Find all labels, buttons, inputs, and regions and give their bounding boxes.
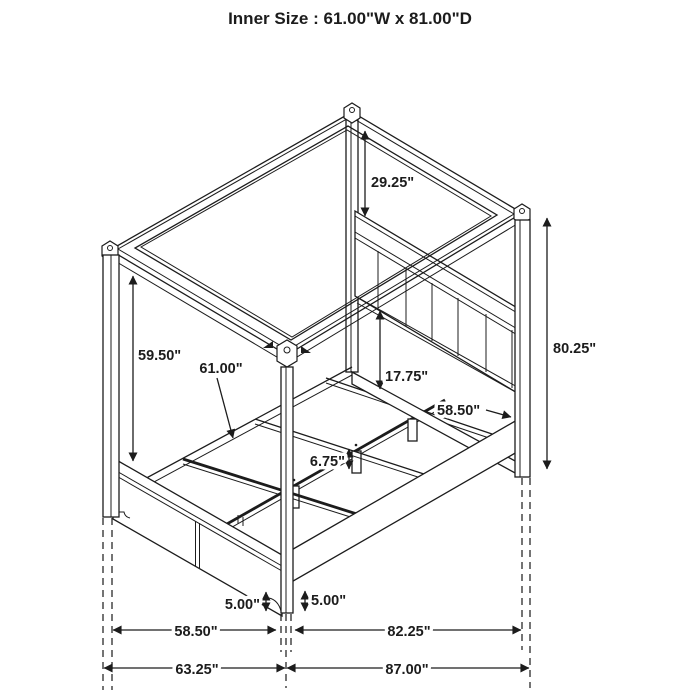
dim-label-58-50-bottom: 58.50" <box>174 624 217 640</box>
dim-label-59-50: 59.50" <box>138 348 181 364</box>
post-left <box>103 255 119 517</box>
dim-label-63-25: 63.25" <box>175 662 218 678</box>
dimension-canopy-to-footboard: 59.50" <box>133 276 181 461</box>
dimension-inner-depth: 58.50" <box>437 403 511 419</box>
dim-label-5-00-right: 5.00" <box>311 593 346 609</box>
dim-label-17-75: 17.75" <box>385 369 428 385</box>
dim-label-61-00: 61.00" <box>199 361 242 377</box>
dim-label-58-50-diag: 58.50" <box>437 403 480 419</box>
dimension-canopy-to-headboard: 29.25" <box>365 131 414 216</box>
post-right <box>515 220 530 477</box>
dimension-diagram: Inner Size : 61.00"W x 81.00"D <box>0 0 700 700</box>
dim-label-80-25: 80.25" <box>553 341 596 357</box>
dim-label-87-00: 87.00" <box>385 662 428 678</box>
post-front <box>281 367 293 613</box>
dimension-inner-width: 61.00" <box>199 361 242 438</box>
slat-rails <box>183 378 495 526</box>
dim-label-82-25: 82.25" <box>387 624 430 640</box>
dimension-foot-height-side: 5.00" <box>305 591 346 611</box>
dim-label-6-75: 6.75" <box>310 454 345 470</box>
dim-label-5-00-left: 5.00" <box>225 597 260 613</box>
bed-line-drawing: Inner Size : 61.00"W x 81.00"D <box>0 0 700 700</box>
dimension-siderail-depth: 82.25" <box>295 624 521 640</box>
dimension-overall-depth: 87.00" <box>287 662 529 678</box>
dim-label-29-25: 29.25" <box>371 175 414 191</box>
dimension-footboard-width: 58.50" <box>113 624 276 640</box>
dimension-support-leg-height: 6.75" <box>310 449 349 470</box>
dimension-overall-height: 80.25" <box>547 218 596 469</box>
inner-size-title: Inner Size : 61.00"W x 81.00"D <box>228 9 472 28</box>
dimension-overall-width: 63.25" <box>104 662 285 678</box>
